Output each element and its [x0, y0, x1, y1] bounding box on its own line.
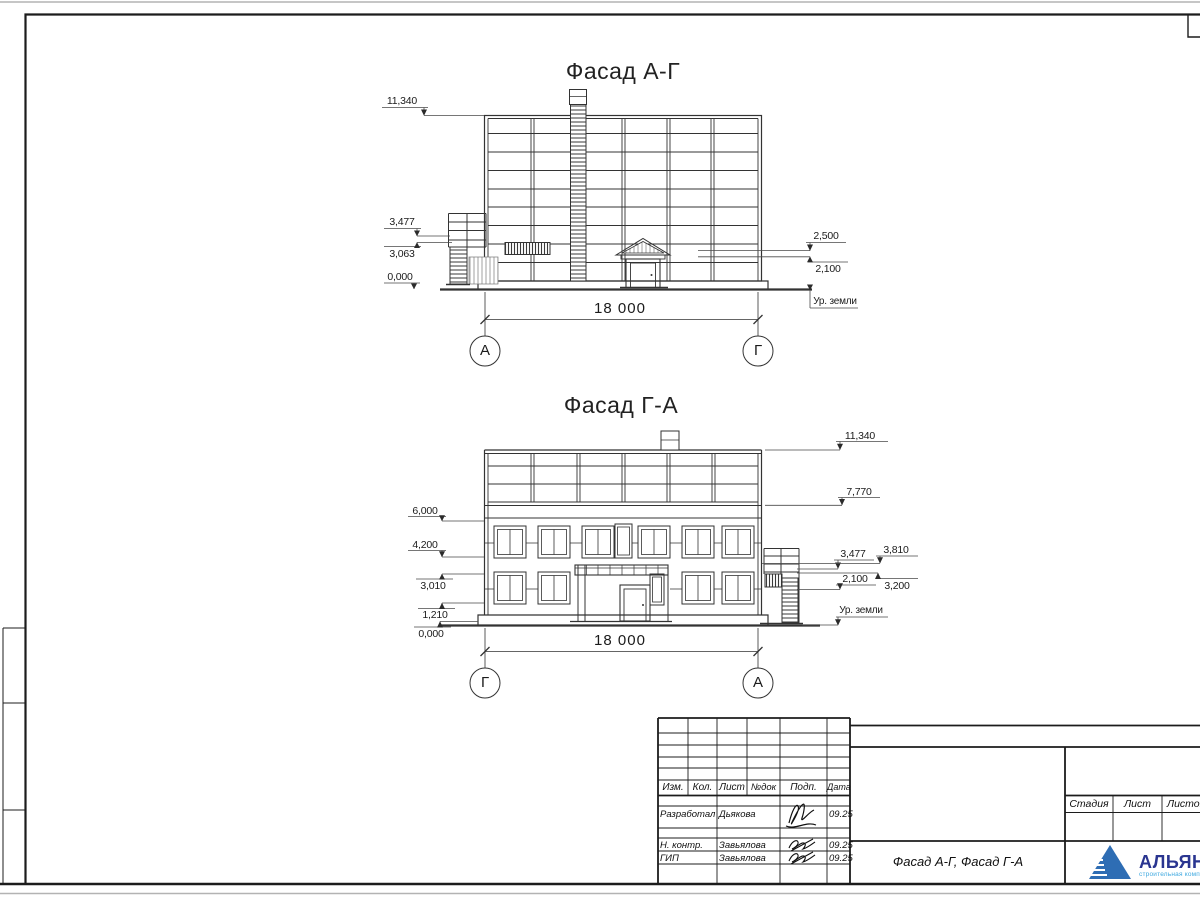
staff-date: 09.25 [829, 840, 852, 851]
axis-label: Г [743, 336, 773, 366]
elevation-mark: 0,000 [382, 271, 418, 283]
stage-col-listov: Листов [1162, 798, 1200, 810]
facade-bottom-drawing [440, 431, 820, 626]
signature-ncontrol [789, 839, 815, 851]
elevation-mark: 3,010 [414, 580, 452, 592]
elevation-mark: 11,340 [382, 95, 422, 107]
stage-col-stadiya: Стадия [1065, 798, 1113, 810]
elevation-mark: 3,063 [384, 248, 420, 260]
rev-col-list: Лист [717, 782, 747, 793]
elevation-mark: 2,100 [836, 573, 874, 585]
signature-developer [786, 804, 816, 827]
staff-role: ГИП [660, 853, 716, 864]
signature-gip [789, 852, 815, 864]
entrance-portico [616, 239, 670, 288]
staff-date: 09.25 [829, 809, 852, 820]
elevation-mark: 4,200 [406, 539, 444, 551]
elevation-mark: 3,810 [877, 544, 915, 556]
company-tagline: строительная компания [1139, 871, 1200, 878]
elevation-mark: 3,477 [834, 548, 872, 560]
document-title: Фасад А-Г, Фасад Г-А [852, 845, 1064, 879]
ground-level-label: Ур. земли [838, 605, 884, 616]
company-name: АЛЬЯНС [1139, 852, 1200, 873]
drawing-sheet: Фасад А-Г 11,340 3,477 3,063 0,000 2,500… [0, 0, 1200, 900]
axis-label: Г [470, 668, 500, 698]
rev-col-izm: Изм. [658, 782, 688, 793]
rev-col-data: Дата [827, 782, 850, 792]
margin-strip [3, 628, 26, 884]
total-dimension: 18 000 [568, 632, 672, 649]
rev-col-kol: Кол. [688, 782, 717, 793]
company-logo-icon [1089, 845, 1131, 879]
windows-upper [485, 524, 762, 558]
right-stair [760, 549, 803, 624]
stage-col-list: Лист [1113, 798, 1162, 810]
facade-top-drawing [440, 90, 812, 290]
roof-ladder [570, 90, 587, 282]
staff-role: Н. контр. [660, 840, 716, 851]
staff-date: 09.25 [829, 853, 852, 864]
elevation-mark: 1,210 [416, 609, 454, 621]
elevation-mark: 3,200 [878, 580, 916, 592]
ground-level-label: Ур. земли [812, 296, 858, 307]
elevation-mark: 2,100 [808, 263, 848, 275]
axis-label: А [743, 668, 773, 698]
elevation-mark: 3,477 [384, 216, 420, 228]
total-dimension: 18 000 [568, 300, 672, 317]
elevation-mark: 0,000 [412, 628, 450, 640]
staff-name: Дьякова [719, 809, 777, 820]
sheet-frame [0, 2, 1200, 894]
drawing-linework [0, 0, 1200, 900]
elevation-mark: 7,770 [840, 486, 878, 498]
entrance-porch [570, 565, 672, 622]
facade-top-dimensions [382, 108, 858, 367]
facade-top-title: Фасад А-Г [543, 58, 703, 85]
windows-lower [485, 572, 762, 604]
rev-col-ndok: №док [747, 782, 780, 793]
staff-name: Завьялова [719, 840, 777, 851]
elevation-mark: 11,340 [838, 430, 882, 442]
staff-name: Завьялова [719, 853, 777, 864]
facade-bottom-title: Фасад Г-А [541, 392, 701, 419]
corner-box [1188, 15, 1200, 38]
axis-label: А [470, 336, 500, 366]
staff-role: Разработал [660, 809, 716, 820]
elevation-mark: 6,000 [406, 505, 444, 517]
signatures [786, 804, 816, 864]
rev-col-podp: Подп. [780, 782, 827, 793]
elevation-mark: 2,500 [806, 230, 846, 242]
